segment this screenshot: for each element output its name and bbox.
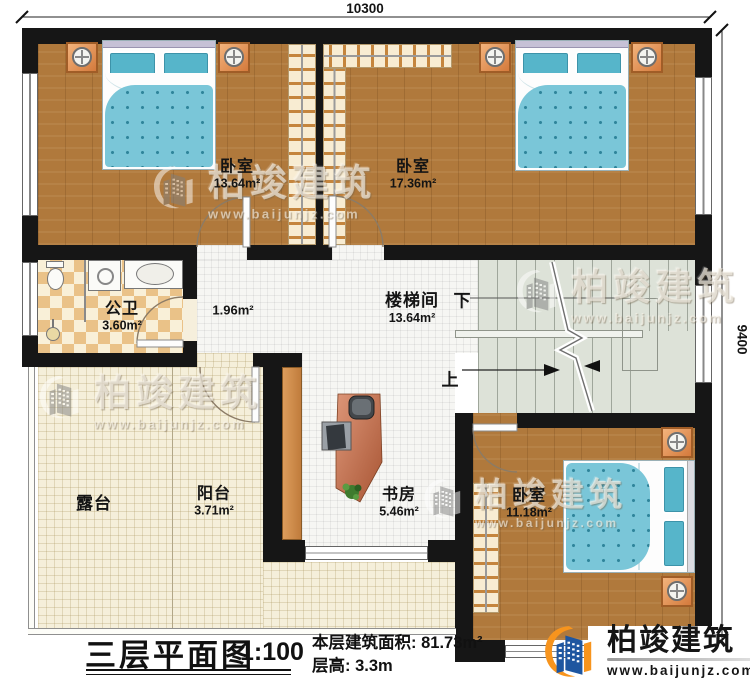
washer-drum	[97, 268, 114, 285]
bed	[102, 40, 216, 170]
room-area: 11.18m²	[506, 506, 552, 520]
room-area: 17.36m²	[390, 177, 437, 191]
closet	[323, 68, 346, 245]
bedroom-top-right-floor	[323, 44, 695, 245]
dimension-tick	[16, 11, 28, 23]
room-label-bedroom-top-left: 卧室 13.64m²	[214, 159, 261, 192]
washing-machine-icon	[88, 260, 121, 291]
room-name: 露台	[76, 494, 112, 514]
room-label-terrace: 露台	[76, 494, 112, 514]
plan-scale: 1:100	[240, 638, 304, 667]
room-area: 3.60m²	[102, 319, 142, 333]
wall-segment	[22, 245, 197, 260]
lamp-icon	[667, 432, 687, 452]
dimension-top-label: 10300	[330, 1, 400, 16]
lamp-icon	[637, 47, 657, 67]
sink-icon	[136, 263, 174, 285]
title-underline	[86, 669, 291, 671]
floor-height-line: 层高: 3.3m	[312, 652, 393, 676]
room-area: 1.96m²	[212, 304, 253, 319]
wall-segment	[183, 253, 197, 299]
doorway-patch	[183, 299, 197, 341]
floor-plan-page: 柏竣建筑 www.baijunjz.com 柏竣建筑 www.baijunjz.…	[0, 0, 750, 692]
stairs-rail-box	[622, 298, 658, 371]
stairs-treads-lower	[478, 338, 640, 413]
dimension-tick	[716, 24, 728, 36]
room-label-balcony: 阳台 3.71m²	[194, 486, 234, 519]
nightstand	[661, 427, 693, 458]
lamp-icon	[485, 47, 505, 67]
wall-segment	[22, 28, 38, 73]
bathroom-partition	[84, 260, 86, 322]
doorway-patch	[197, 245, 247, 260]
floor-height-label: 层高:	[312, 657, 351, 675]
wall-segment	[455, 413, 473, 662]
room-label-bedroom-bottom-right: 卧室 11.18m²	[506, 488, 552, 521]
wardrobe-cabinet	[282, 367, 302, 540]
toilet-icon	[47, 268, 64, 290]
brand-name: 柏竣建筑	[607, 626, 750, 656]
wall-segment	[247, 245, 332, 260]
window	[695, 77, 712, 215]
doorway-patch	[197, 353, 253, 367]
nightstand	[661, 576, 693, 607]
room-name: 书房	[379, 487, 419, 505]
nightstand	[218, 42, 250, 73]
nightstand	[479, 42, 511, 73]
room-name: 卧室	[214, 159, 261, 177]
window	[22, 262, 38, 336]
floor-area-label: 本层建筑面积:	[312, 634, 417, 652]
wall-segment	[695, 28, 712, 77]
room-name: 阳台	[194, 486, 234, 504]
dimension-tick	[704, 11, 716, 23]
bed-blanket	[518, 85, 626, 168]
pillow	[662, 519, 686, 568]
floor-area-line: 本层建筑面积: 81.73m²	[312, 629, 483, 653]
terrace-balcony-divider	[172, 367, 173, 628]
room-label-bathroom: 公卫 3.60m²	[102, 301, 142, 334]
room-area: 13.64m²	[214, 177, 261, 191]
title-underline	[86, 674, 291, 675]
shower-icon	[46, 327, 60, 341]
bed-blanket	[105, 85, 213, 167]
bed-blanket	[566, 463, 650, 570]
window	[22, 73, 38, 216]
room-area: 13.64m²	[385, 311, 439, 325]
toilet-icon	[46, 261, 64, 268]
bed-headboard	[687, 461, 694, 572]
dimension-right-label: 9400	[735, 310, 750, 370]
room-label-study: 书房 5.46m²	[379, 487, 419, 520]
terrace-railing	[28, 367, 35, 635]
brand-url: www.baijunjz.com	[607, 664, 750, 678]
room-label-bedroom-top-right: 卧室 17.36m²	[390, 159, 437, 192]
doorway-patch	[473, 413, 517, 428]
closet	[473, 483, 499, 613]
room-area: 5.46m²	[379, 505, 419, 519]
room-label-stairwell: 楼梯间 13.64m²	[385, 291, 439, 325]
pillow	[662, 465, 686, 514]
wall-segment	[282, 540, 305, 562]
lamp-icon	[224, 47, 244, 67]
floor-area-value: 81.73m²	[421, 634, 482, 652]
brand-logo: 柏竣建筑 www.baijunjz.com	[538, 621, 750, 683]
wall-segment	[22, 353, 197, 367]
closet	[323, 44, 452, 68]
room-name: 卧室	[390, 159, 437, 177]
wall-segment	[384, 245, 712, 260]
wall-segment	[517, 413, 712, 428]
room-name: 卧室	[506, 488, 552, 506]
brand-rule	[607, 658, 750, 661]
wall-segment	[428, 540, 455, 562]
stairs-treads-upper	[478, 260, 695, 331]
brand-logo-icon	[538, 621, 600, 683]
bed	[563, 460, 695, 573]
wall-segment	[316, 28, 323, 250]
bed	[515, 40, 629, 171]
lamp-icon	[72, 47, 92, 67]
stairs-up-label: 上	[442, 366, 459, 391]
doorway-patch	[332, 245, 384, 260]
stairs-handrail	[455, 330, 643, 338]
nightstand	[631, 42, 663, 73]
bed-headboard	[103, 41, 215, 48]
nightstand	[66, 42, 98, 73]
balcony-floor-strip	[263, 562, 455, 628]
bed-headboard	[516, 41, 628, 48]
wall-segment	[263, 353, 282, 562]
lamp-icon	[667, 581, 687, 601]
stairs-down-label: 下	[454, 287, 471, 312]
window	[305, 546, 428, 560]
window	[695, 285, 712, 383]
room-name: 公卫	[102, 301, 142, 319]
room-label-hallway: 1.96m²	[212, 304, 253, 319]
room-area: 3.71m²	[194, 504, 234, 518]
room-name: 楼梯间	[385, 291, 439, 311]
floor-height-value: 3.3m	[355, 657, 393, 675]
closet	[288, 44, 316, 245]
